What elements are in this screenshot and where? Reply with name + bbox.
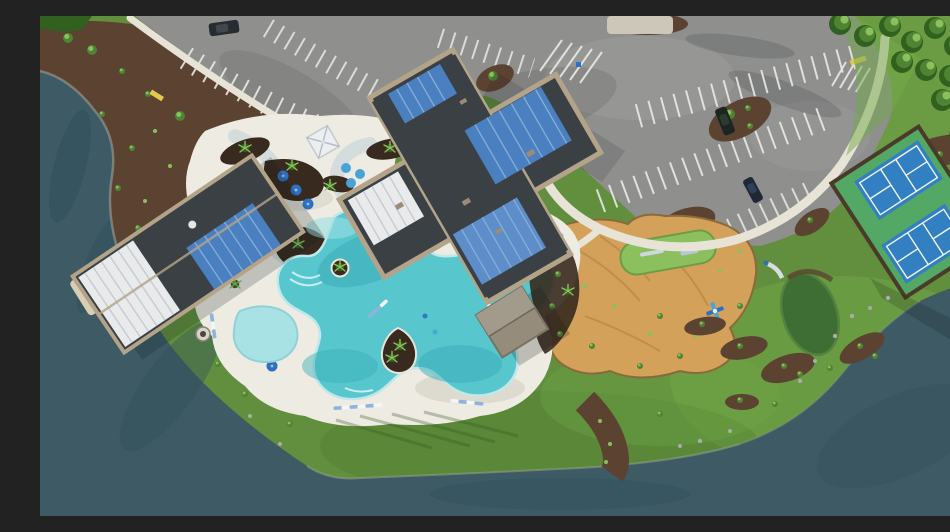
fire-pit (196, 327, 210, 341)
aerial-scene (40, 16, 950, 516)
kiddie-pool (234, 306, 298, 362)
concrete-pad (607, 16, 673, 34)
ada-symbol (576, 62, 581, 67)
aerial-photo (40, 16, 950, 516)
